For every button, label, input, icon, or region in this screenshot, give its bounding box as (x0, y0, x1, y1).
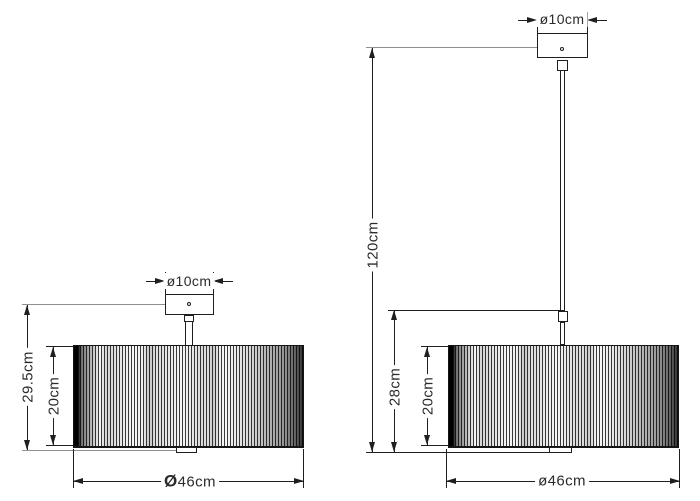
left-mount-hole (187, 302, 191, 306)
diameter-symbol: ø (538, 473, 548, 490)
left-stem (185, 321, 193, 346)
diameter-value: 46cm (548, 473, 586, 490)
lamp-dimension-diagram: ø10cm 29.5cm 20cm Ø46cm (0, 0, 700, 501)
left-shade-height-label: 20cm (46, 374, 63, 418)
left-finial (176, 447, 197, 453)
arrowhead-left-icon (446, 478, 456, 484)
right-canopy-diameter-label: ø10cm (537, 11, 588, 27)
arrowhead-left-icon (73, 478, 83, 484)
arrowhead-up-icon (24, 305, 30, 315)
right-suspension-rod (560, 70, 565, 312)
extension-line (388, 310, 565, 311)
left-canopy-diameter-label: ø10cm (164, 273, 215, 289)
right-rod-coupler (558, 311, 568, 322)
diameter-symbol: Ø (164, 472, 178, 491)
arrowhead-left-icon (213, 278, 223, 284)
extension-line (366, 452, 567, 453)
left-shade (73, 345, 304, 448)
arrowhead-down-icon (24, 440, 30, 450)
diameter-value: 46cm (178, 474, 216, 491)
arrowhead-right-icon (670, 478, 680, 484)
arrowhead-right-icon (527, 17, 537, 23)
arrowhead-left-icon (587, 17, 597, 23)
dimension-line (597, 20, 607, 21)
extension-line (22, 450, 193, 451)
right-drop-height-label: 120cm (365, 218, 382, 271)
extension-line (46, 445, 73, 446)
right-suspension-rod-lower (560, 322, 565, 345)
right-finial (549, 447, 572, 453)
left-shade-diameter-label: Ø46cm (161, 472, 219, 491)
arrowhead-up-icon (50, 347, 56, 357)
arrowhead-down-icon (391, 442, 397, 452)
arrowhead-up-icon (369, 48, 375, 58)
extension-line (421, 445, 448, 446)
arrowhead-down-icon (369, 442, 375, 452)
arrowhead-down-icon (50, 435, 56, 445)
arrowhead-down-icon (424, 435, 430, 445)
right-mount-hole (560, 47, 564, 51)
left-overall-height-label: 29.5cm (20, 348, 37, 406)
arrowhead-up-icon (424, 347, 430, 357)
right-shade-height-label: 20cm (420, 374, 437, 418)
arrowhead-up-icon (391, 310, 397, 320)
extension-line (366, 47, 537, 48)
right-canopy (537, 33, 588, 58)
right-shade (448, 345, 679, 448)
dimension-line (223, 281, 233, 282)
right-stem-height-label: 28cm (387, 365, 404, 409)
right-shade-diameter-label: ø46cm (535, 473, 589, 490)
arrowhead-right-icon (294, 478, 304, 484)
